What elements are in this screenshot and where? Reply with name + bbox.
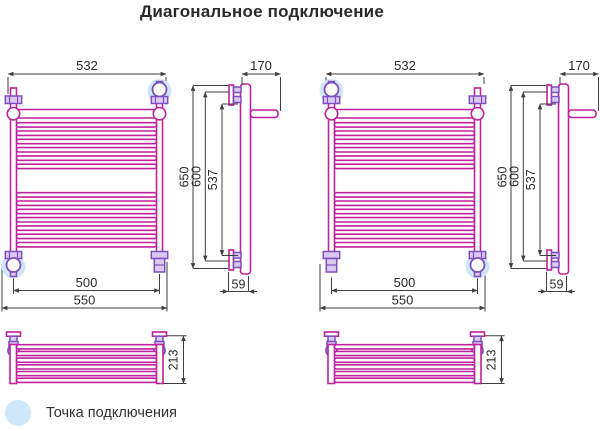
right-bottom-right-connection-point — [466, 252, 490, 279]
legend: Точка подключения — [5, 400, 177, 426]
right-shelf-top-view — [325, 332, 505, 384]
right-top-right-valve — [469, 88, 485, 104]
right-side-view — [496, 58, 599, 292]
left-front-view — [2, 58, 167, 312]
legend-label: Точка подключения — [46, 405, 177, 421]
left-diagram — [2, 58, 281, 384]
left-shelf-top-view — [7, 332, 187, 384]
left-top-right-connection-point — [148, 79, 172, 104]
right-diagram — [320, 58, 599, 384]
left-bottom-left-connection-point — [2, 252, 26, 279]
right-bottom-left-valve — [323, 252, 339, 273]
connection-point-icon — [5, 400, 31, 426]
left-side-view — [178, 58, 281, 292]
technical-drawing: 532 500 550 — [0, 0, 600, 431]
drawing-canvas: Диагональное подключение — [0, 0, 600, 431]
right-top-left-connection-point — [320, 79, 344, 104]
right-front-view — [320, 58, 485, 312]
left-bottom-right-valve — [151, 252, 167, 273]
